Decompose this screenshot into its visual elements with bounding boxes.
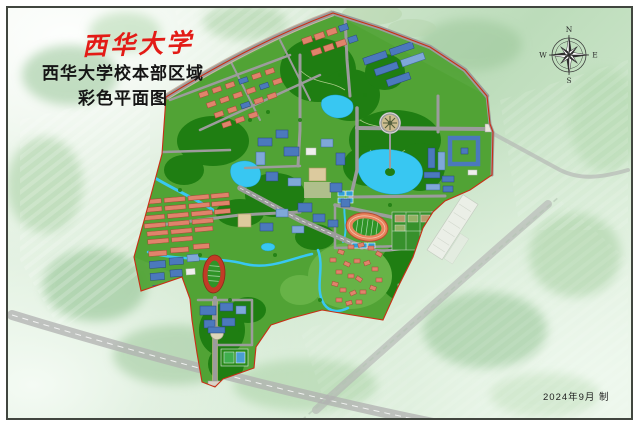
map-title-line1: 西华大学校本部区域 — [26, 59, 220, 84]
compass-points — [549, 35, 589, 75]
compass-label-north: N — [566, 25, 573, 34]
map-title-line2: 彩色平面图 — [26, 84, 220, 109]
compass-label-south: S — [566, 76, 571, 85]
map-date-label: 2024年9月 制 — [543, 389, 623, 403]
compass-label-east: E — [592, 51, 597, 60]
university-logo-calligraphy: 西华大学 — [59, 22, 216, 63]
campus-map-page: 西华大学 西华大学校本部区域 彩色平面图 N E S W 2024年9月 制 — [0, 0, 639, 426]
compass-label-west: W — [539, 51, 547, 60]
compass-rose: N E S W — [536, 22, 602, 88]
roundabout-plaza — [379, 112, 401, 134]
